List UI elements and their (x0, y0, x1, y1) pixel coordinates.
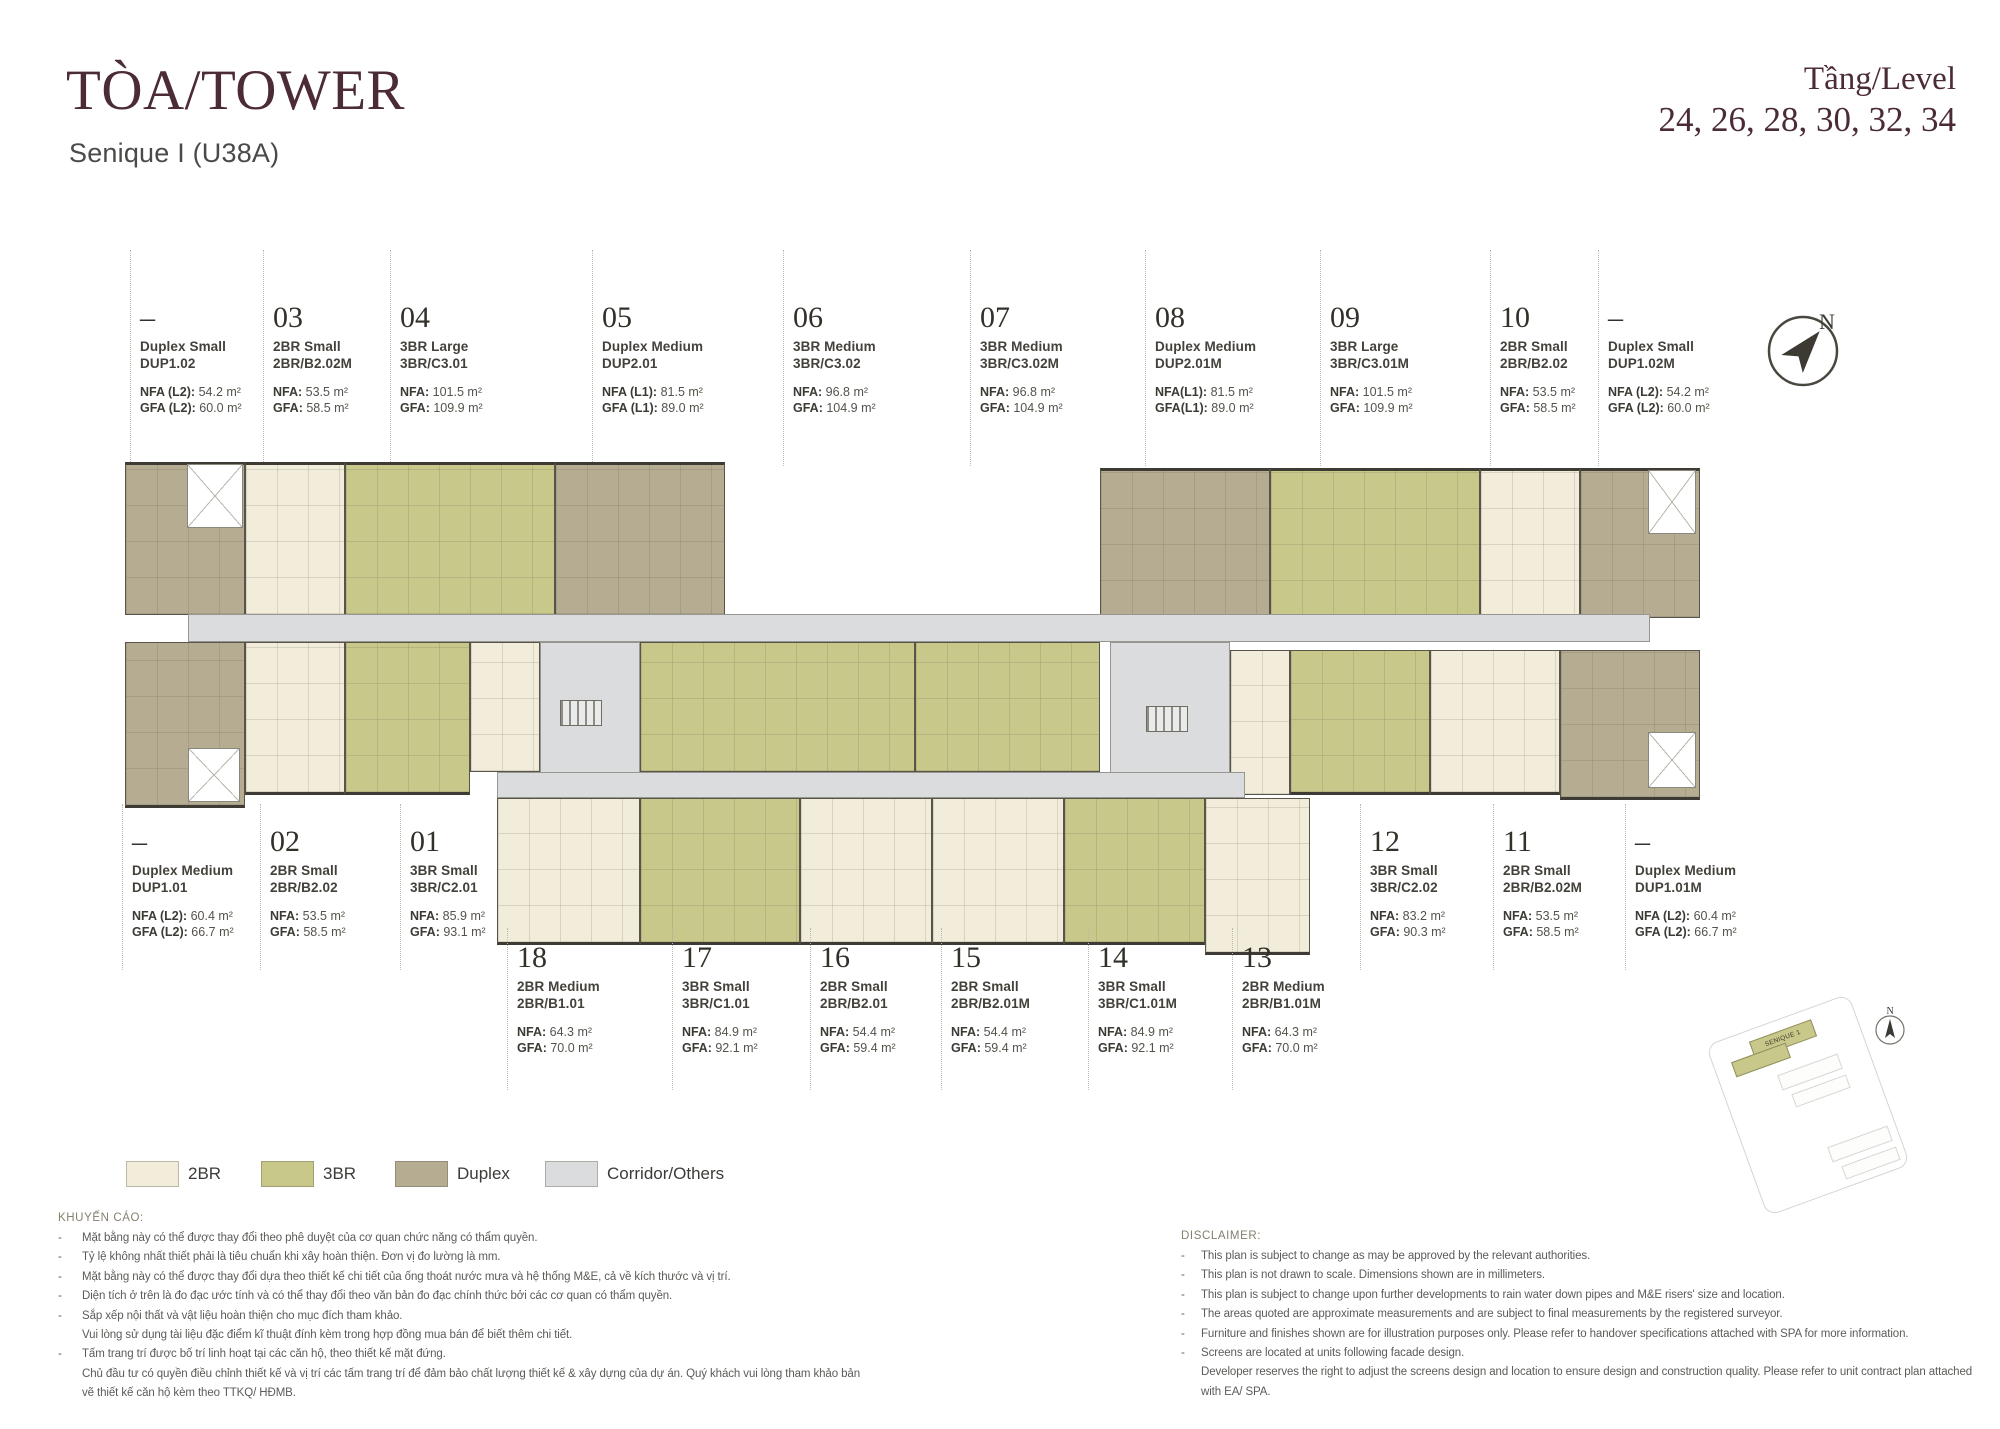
plan-unit-16 (800, 798, 932, 945)
plan-corridor-main (188, 614, 1650, 642)
floorplan-page: { "colors":{ "2br":"#f2edda", "3br":"#c8… (0, 0, 2000, 1429)
plan-unit-03 (245, 462, 345, 615)
unit-label-11: 11 2BR Small 2BR/B2.02M NFA: 53.5 m² GFA… (1493, 804, 1643, 970)
unit-label-07: 07 3BR Medium 3BR/C3.02M NFA: 96.8 m² GF… (970, 250, 1120, 466)
unit-label-05: 05 Duplex Medium DUP2.01 NFA (L1): 81.5 … (592, 250, 742, 466)
advisory-section: KHUYẾN CÁO: -Mặt bằng này có thể được th… (58, 1212, 860, 1404)
unit-label-12: 12 3BR Small 3BR/C2.02 NFA: 83.2 m² GFA:… (1360, 804, 1510, 970)
plan-unit-09 (1270, 468, 1480, 618)
unit-label-dup101: – Duplex Medium DUP1.01 NFA (L2): 60.4 m… (122, 804, 272, 970)
unit-label-dup102: – Duplex Small DUP1.02 NFA (L2): 54.2 m²… (130, 250, 280, 466)
unit-label-08: 08 Duplex Medium DUP2.01M NFA(L1): 81.5 … (1145, 250, 1295, 466)
site-map: SENIQUE 1 N (1700, 1000, 1950, 1210)
compass-icon: N (1758, 306, 1848, 396)
site-compass-north-label: N (1887, 1006, 1894, 1017)
legend-label-corridor: Corridor/Others (607, 1161, 724, 1187)
site-compass-icon: N (1866, 1006, 1914, 1054)
legend-swatch-2br (126, 1161, 179, 1187)
legend-label-duplex: Duplex (457, 1161, 510, 1187)
disclaimer-section: DISCLAIMER: -This plan is subject to cha… (1181, 1230, 1972, 1402)
void-shaft-top-left (187, 464, 243, 528)
plan-unit-2br-sliver-left (470, 642, 540, 772)
unit-label-16: 16 2BR Small 2BR/B2.01 NFA: 54.4 m² GFA:… (810, 928, 960, 1090)
advisory-heading: KHUYẾN CÁO: (58, 1212, 860, 1224)
plan-unit-07 (915, 642, 1100, 772)
plan-unit-04 (345, 462, 555, 615)
plan-unit-06 (640, 642, 915, 772)
legend-label-3br: 3BR (323, 1161, 356, 1187)
plan-unit-05 (555, 462, 725, 615)
plan-unit-14 (1064, 798, 1205, 945)
compass-north-label: N (1819, 309, 1835, 334)
stairs-icon-left (560, 700, 602, 726)
plan-unit-17 (640, 798, 800, 945)
unit-label-14: 14 3BR Small 3BR/C1.01M NFA: 84.9 m² GFA… (1088, 928, 1238, 1090)
unit-label-15: 15 2BR Small 2BR/B2.01M NFA: 54.4 m² GFA… (941, 928, 1091, 1090)
level-label: Tầng/Level (1659, 60, 1957, 98)
page-title: TÒA/TOWER (66, 62, 405, 119)
unit-label-06: 06 3BR Medium 3BR/C3.02 NFA: 96.8 m² GFA… (783, 250, 933, 466)
void-shaft-bottom-right (1648, 732, 1696, 788)
legend-swatch-3br (261, 1161, 314, 1187)
plan-unit-12 (1290, 650, 1430, 795)
disclaimer-heading: DISCLAIMER: (1181, 1230, 1972, 1242)
unit-label-dup101m: – Duplex Medium DUP1.01M NFA (L2): 60.4 … (1625, 804, 1775, 970)
legend-label-2br: 2BR (188, 1161, 221, 1187)
plan-unit-01 (345, 642, 470, 795)
plan-unit-02 (245, 642, 345, 795)
level-header: Tầng/Level 24, 26, 28, 30, 32, 34 (1659, 60, 1957, 142)
unit-label-13: 13 2BR Medium 2BR/B1.01M NFA: 64.3 m² GF… (1232, 928, 1382, 1090)
unit-label-18: 18 2BR Medium 2BR/B1.01 NFA: 64.3 m² GFA… (507, 928, 657, 1090)
unit-label-dup102m: – Duplex Small DUP1.02M NFA (L2): 54.2 m… (1598, 250, 1748, 466)
unit-label-09: 09 3BR Large 3BR/C3.01M NFA: 101.5 m² GF… (1320, 250, 1470, 466)
legend-swatch-duplex (395, 1161, 448, 1187)
stairs-icon-right (1146, 706, 1188, 732)
plan-unit-11 (1430, 650, 1560, 795)
page-subtitle: Senique I (U38A) (69, 138, 279, 169)
level-numbers: 24, 26, 28, 30, 32, 34 (1659, 98, 1957, 142)
unit-label-02: 02 2BR Small 2BR/B2.02 NFA: 53.5 m² GFA:… (260, 804, 410, 970)
void-shaft-bottom-left (188, 748, 240, 802)
plan-unit-10 (1480, 468, 1580, 618)
unit-label-17: 17 3BR Small 3BR/C1.01 NFA: 84.9 m² GFA:… (672, 928, 822, 1090)
unit-label-04: 04 3BR Large 3BR/C3.01 NFA: 101.5 m² GFA… (390, 250, 540, 466)
legend-swatch-corridor (545, 1161, 598, 1187)
plan-corridor-lower (497, 772, 1245, 798)
plan-unit-15 (932, 798, 1064, 945)
plan-unit-08 (1100, 468, 1270, 618)
void-shaft-top-right (1648, 470, 1696, 534)
